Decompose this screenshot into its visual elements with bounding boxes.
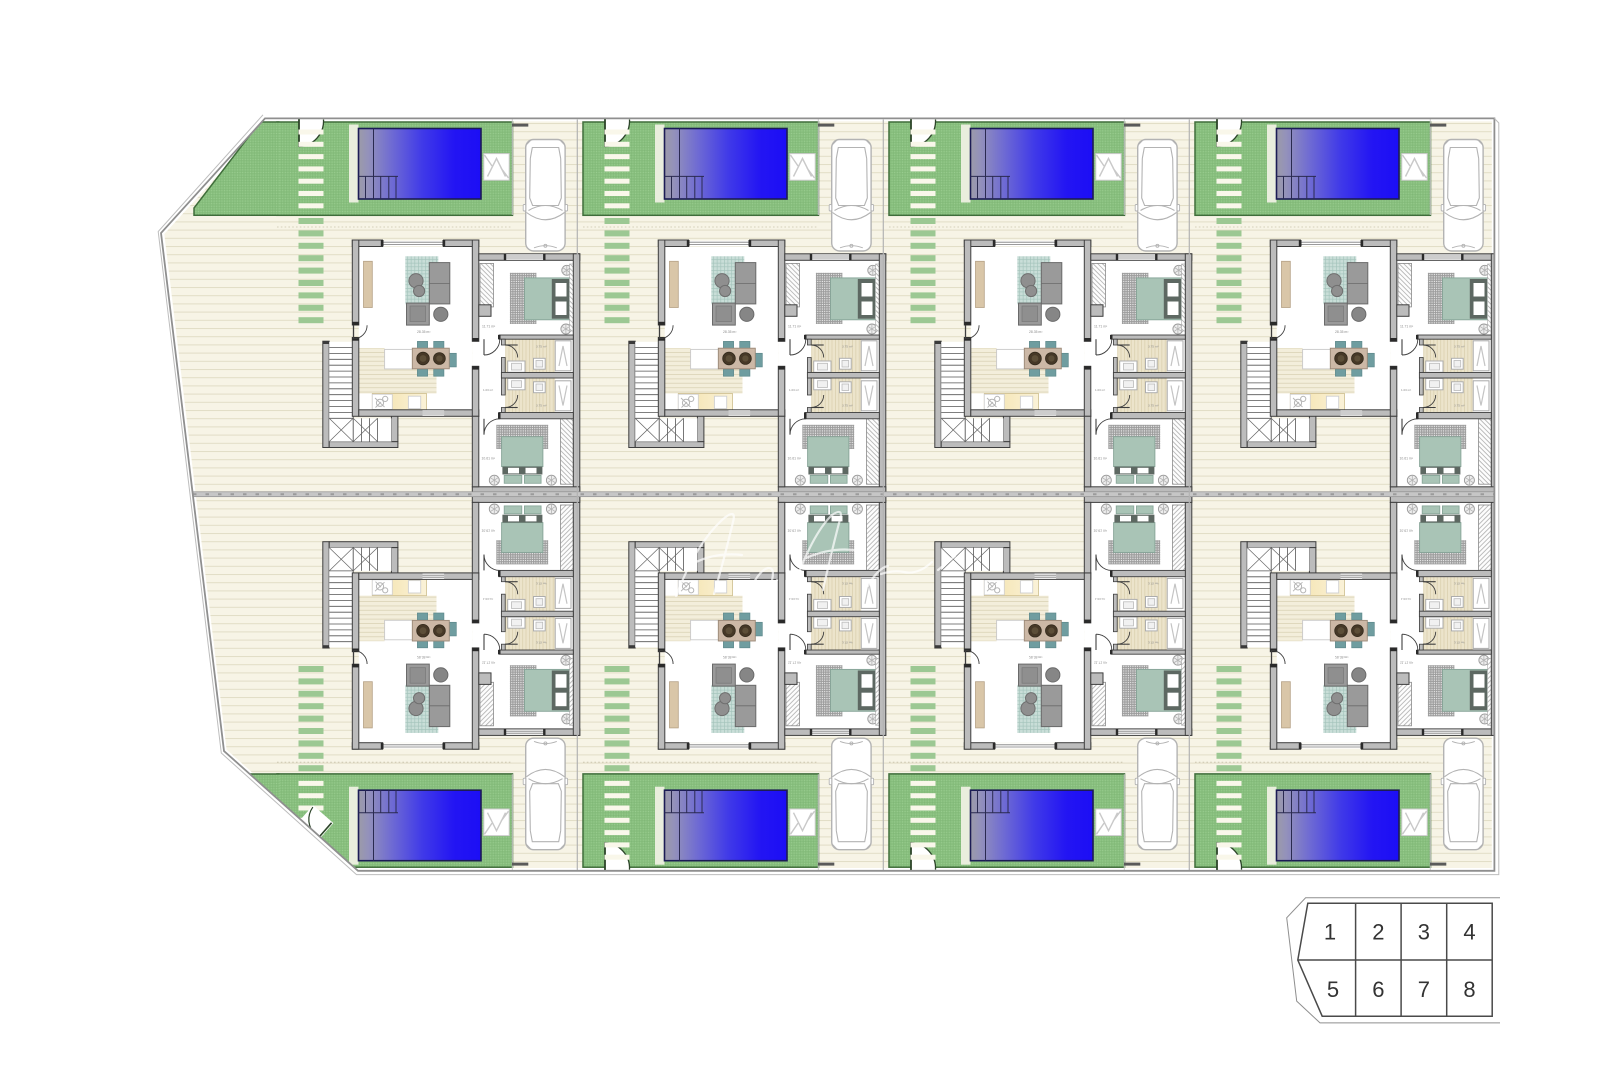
svg-text:3: 3 — [1418, 920, 1430, 945]
svg-text:7: 7 — [1418, 977, 1430, 1002]
svg-text:8: 8 — [1463, 977, 1475, 1002]
svg-text:4: 4 — [1463, 920, 1475, 945]
svg-text:5: 5 — [1327, 977, 1339, 1002]
svg-text:1: 1 — [1324, 920, 1336, 945]
svg-text:2: 2 — [1372, 920, 1384, 945]
svg-text:6: 6 — [1372, 977, 1384, 1002]
